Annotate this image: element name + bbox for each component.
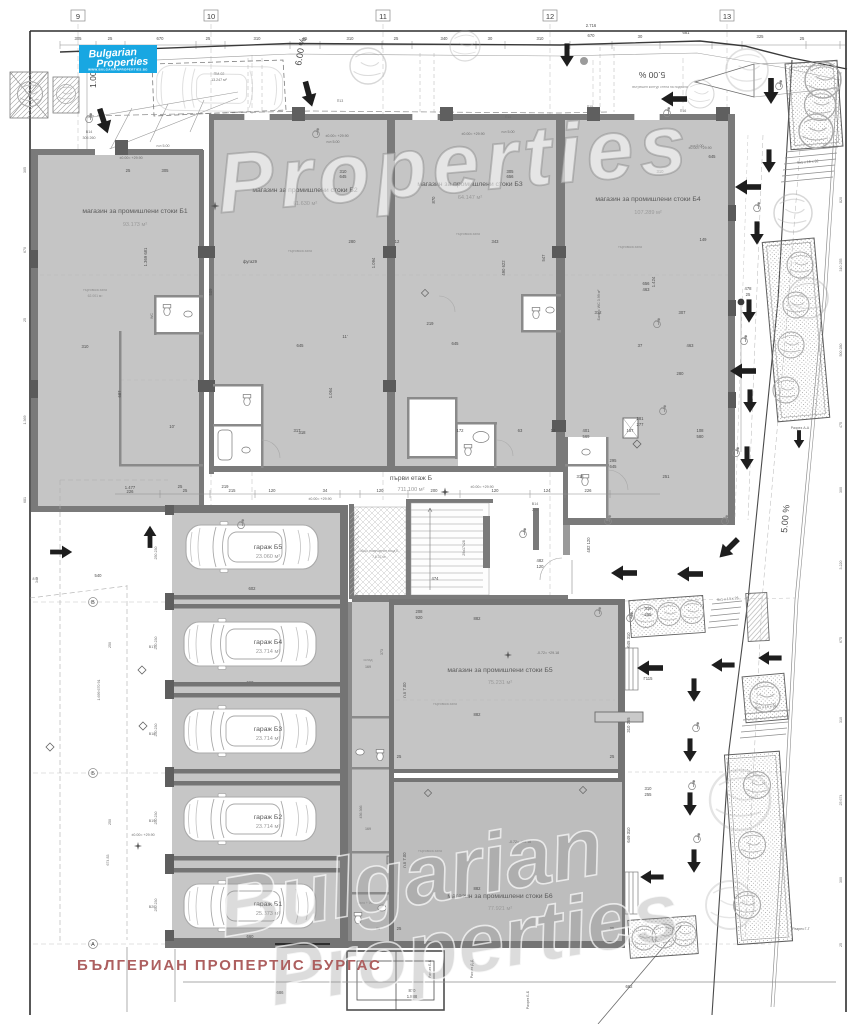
svg-text:300: 300 xyxy=(839,877,843,883)
svg-text:магазин за промишлени стоки Б4: магазин за промишлени стоки Б4 xyxy=(595,196,701,203)
svg-text:вътрешен контур стена на подва: вътрешен контур стена на подвала xyxy=(632,85,688,89)
svg-text:108: 108 xyxy=(697,428,705,433)
svg-text:37: 37 xyxy=(638,343,643,348)
svg-text:34: 34 xyxy=(323,488,328,493)
svg-text:склад: склад xyxy=(363,658,372,662)
svg-text:478: 478 xyxy=(745,286,753,291)
svg-text:n.n 7.00: n.n 7.00 xyxy=(402,682,407,698)
svg-text:645: 645 xyxy=(297,343,305,348)
svg-text:169: 169 xyxy=(365,827,371,831)
svg-text:2.716: 2.716 xyxy=(586,23,597,28)
svg-text:482 120: 482 120 xyxy=(586,537,591,553)
svg-text:681: 681 xyxy=(23,497,27,503)
svg-text:WWW.BULGARIANPROPERTIES.BG: WWW.BULGARIANPROPERTIES.BG xyxy=(88,68,148,72)
svg-text:547: 547 xyxy=(541,254,546,262)
svg-text:25: 25 xyxy=(394,36,399,41)
svg-text:B14: B14 xyxy=(532,502,538,506)
svg-text:463: 463 xyxy=(643,287,651,292)
svg-text:317: 317 xyxy=(294,428,302,433)
svg-text:656: 656 xyxy=(643,281,651,286)
svg-text:25 674: 25 674 xyxy=(839,795,843,806)
svg-text:310: 310 xyxy=(645,786,653,791)
svg-text:310: 310 xyxy=(839,717,843,723)
svg-text:475: 475 xyxy=(839,422,843,428)
svg-text:1.369 681: 1.369 681 xyxy=(143,247,148,266)
svg-text:25: 25 xyxy=(397,754,402,759)
svg-text:681: 681 xyxy=(683,30,691,35)
svg-text:882: 882 xyxy=(474,616,482,621)
svg-text:±0.00= +29.90: ±0.00= +29.90 xyxy=(470,485,493,489)
svg-text:124: 124 xyxy=(544,488,552,493)
svg-text:Г115: Г115 xyxy=(644,676,654,681)
svg-text:255: 255 xyxy=(645,792,653,797)
svg-text:649 310: 649 310 xyxy=(626,827,631,843)
svg-text:П13: П13 xyxy=(337,99,344,103)
svg-text:340: 340 xyxy=(441,36,449,41)
svg-text:373: 373 xyxy=(380,649,384,655)
svg-text:509: 509 xyxy=(208,288,213,296)
svg-text:н.п 5.00: н.п 5.00 xyxy=(157,144,170,148)
svg-text:3.220: 3.220 xyxy=(839,561,843,570)
svg-text:23.060 м²: 23.060 м² xyxy=(256,554,281,560)
svg-text:200: 200 xyxy=(431,488,439,493)
svg-text:25: 25 xyxy=(108,36,113,41)
svg-text:295: 295 xyxy=(610,458,618,463)
svg-text:±0.00= +29.90: ±0.00= +29.90 xyxy=(119,156,142,160)
svg-text:В: В xyxy=(91,600,95,606)
svg-text:645: 645 xyxy=(452,341,460,346)
svg-text:670: 670 xyxy=(157,36,165,41)
svg-text:318: 318 xyxy=(577,474,585,479)
svg-text:общо помещение вход Б: общо помещение вход Б xyxy=(360,549,400,553)
svg-text:12: 12 xyxy=(551,428,556,433)
svg-text:250: 250 xyxy=(108,819,112,825)
svg-text:10': 10' xyxy=(169,424,175,429)
svg-text:401: 401 xyxy=(583,428,591,433)
svg-text:25: 25 xyxy=(610,754,615,759)
svg-text:13: 13 xyxy=(723,12,731,21)
svg-text:920: 920 xyxy=(416,615,424,620)
svg-text:9: 9 xyxy=(76,12,80,21)
svg-text:569: 569 xyxy=(583,434,591,439)
svg-text:277: 277 xyxy=(637,422,645,427)
svg-text:11: 11 xyxy=(379,12,387,21)
svg-text:25: 25 xyxy=(839,943,843,947)
svg-text:25: 25 xyxy=(126,168,131,173)
svg-text:107.289 м²: 107.289 м² xyxy=(634,210,662,216)
svg-text:482: 482 xyxy=(537,558,545,563)
svg-text:25: 25 xyxy=(178,484,183,489)
svg-text:гараж Б2: гараж Б2 xyxy=(254,814,283,821)
svg-text:187: 187 xyxy=(627,428,635,433)
svg-text:62.001 м²: 62.001 м² xyxy=(88,294,104,298)
svg-text:645: 645 xyxy=(610,464,618,469)
svg-text:226: 226 xyxy=(585,488,593,493)
svg-text:±0.00= +29.90: ±0.00= +29.90 xyxy=(131,833,154,837)
svg-text:250: 250 xyxy=(108,642,112,648)
svg-text:490 622: 490 622 xyxy=(501,260,506,276)
svg-text:310: 310 xyxy=(347,36,355,41)
svg-text:25: 25 xyxy=(183,488,188,493)
svg-text:251: 251 xyxy=(663,474,671,479)
svg-text:1.424: 1.424 xyxy=(651,276,656,287)
svg-text:120: 120 xyxy=(537,564,545,569)
svg-text:гараж Б5: гараж Б5 xyxy=(254,544,283,551)
svg-text:н.п 5.00: н.п 5.00 xyxy=(691,144,704,148)
svg-text:1.00: 1.00 xyxy=(88,71,98,88)
svg-text:1.369: 1.369 xyxy=(23,416,27,425)
svg-text:5.00 %: 5.00 % xyxy=(638,70,665,80)
svg-text:B18: B18 xyxy=(149,732,155,736)
svg-text:120: 120 xyxy=(377,488,385,493)
svg-text:29x17x28: 29x17x28 xyxy=(462,540,466,556)
svg-text:500 280: 500 280 xyxy=(839,344,843,357)
svg-text:23.714 м²: 23.714 м² xyxy=(256,824,281,830)
svg-text:7.6.37 м²: 7.6.37 м² xyxy=(372,555,387,559)
svg-text:гараж Б3: гараж Б3 xyxy=(254,726,283,733)
svg-text:30: 30 xyxy=(638,34,643,39)
svg-text:12: 12 xyxy=(395,239,400,244)
svg-text:А: А xyxy=(91,942,95,948)
svg-text:580: 580 xyxy=(697,434,705,439)
svg-text:B17: B17 xyxy=(149,645,155,649)
svg-text:гараж Б4: гараж Б4 xyxy=(254,639,283,646)
svg-text:172: 172 xyxy=(457,428,465,433)
svg-text:търговска зала: търговска зала xyxy=(288,249,312,253)
svg-text:магазин за промишлени стоки Б5: магазин за промишлени стоки Б5 xyxy=(447,667,553,674)
svg-text:75.231 м²: 75.231 м² xyxy=(488,680,513,686)
svg-text:търговска зала: търговска зала xyxy=(83,288,107,292)
svg-text:търговска зала: търговска зала xyxy=(456,232,480,236)
svg-text:магазин за промишлени стоки Б1: магазин за промишлени стоки Б1 xyxy=(82,208,188,215)
svg-text:674 83: 674 83 xyxy=(106,855,110,866)
svg-text:219: 219 xyxy=(427,321,435,326)
svg-text:първи етаж Б: първи етаж Б xyxy=(390,475,433,482)
svg-text:645: 645 xyxy=(709,154,717,159)
svg-text:280: 280 xyxy=(349,239,357,244)
svg-text:670: 670 xyxy=(23,247,27,253)
svg-text:280: 280 xyxy=(677,371,685,376)
svg-text:307: 307 xyxy=(679,310,687,315)
svg-text:11': 11' xyxy=(342,334,347,339)
svg-text:305 260: 305 260 xyxy=(83,136,96,140)
svg-text:B14: B14 xyxy=(86,130,92,134)
svg-text:300: 300 xyxy=(839,487,843,493)
svg-text:-0.72= +29.18: -0.72= +29.18 xyxy=(537,651,559,655)
svg-text:215: 215 xyxy=(229,488,237,493)
svg-text:13.247 м²: 13.247 м² xyxy=(211,78,227,82)
svg-text:670: 670 xyxy=(588,33,596,38)
svg-text:711.100 м²: 711.100 м² xyxy=(397,487,424,493)
svg-text:25: 25 xyxy=(23,318,27,322)
svg-text:WC: WC xyxy=(150,313,154,319)
svg-text:Баня с WC 3.99 м²: Баня с WC 3.99 м² xyxy=(597,289,601,321)
svg-text:1.064: 1.064 xyxy=(328,387,333,398)
svg-text:281: 281 xyxy=(637,416,645,421)
svg-text:310 255: 310 255 xyxy=(839,259,843,272)
svg-text:8 9: 8 9 xyxy=(33,577,38,581)
svg-text:12: 12 xyxy=(546,12,554,21)
svg-text:310: 310 xyxy=(645,606,653,611)
svg-text:305: 305 xyxy=(162,168,170,173)
svg-text:120: 120 xyxy=(269,488,277,493)
svg-text:фуга29: фуга29 xyxy=(243,259,258,264)
svg-text:23.714 м²: 23.714 м² xyxy=(256,736,281,742)
svg-text:456 366: 456 366 xyxy=(359,806,363,819)
svg-text:343: 343 xyxy=(492,239,500,244)
svg-text:820: 820 xyxy=(839,197,843,203)
svg-text:БЪЛГЕРИАН ПРОПЕРТИС БУРГАС: БЪЛГЕРИАН ПРОПЕРТИС БУРГАС xyxy=(77,957,382,974)
svg-text:B20: B20 xyxy=(149,905,155,909)
svg-text:226: 226 xyxy=(127,489,135,494)
svg-text:310 255: 310 255 xyxy=(626,717,631,733)
svg-text:305: 305 xyxy=(23,167,27,173)
svg-text:23.714 м²: 23.714 м² xyxy=(256,649,281,655)
svg-text:474: 474 xyxy=(432,576,440,581)
svg-text:30: 30 xyxy=(488,36,493,41)
svg-text:169: 169 xyxy=(365,665,371,669)
svg-text:Б: Б xyxy=(91,771,95,777)
svg-text:10: 10 xyxy=(207,12,215,21)
svg-text:търговска зала: търговска зала xyxy=(433,702,457,706)
svg-text:1.094: 1.094 xyxy=(371,257,376,268)
svg-text:Разрез А-А: Разрез А-А xyxy=(791,426,810,430)
svg-text:219: 219 xyxy=(222,484,230,489)
svg-text:250 230: 250 230 xyxy=(154,547,158,560)
svg-text:25: 25 xyxy=(746,292,751,297)
svg-text:255: 255 xyxy=(645,612,653,617)
svg-text:търговска зала: търговска зала xyxy=(618,245,642,249)
svg-text:63: 63 xyxy=(518,428,523,433)
svg-text:645 310: 645 310 xyxy=(626,632,631,648)
svg-text:208: 208 xyxy=(416,609,424,614)
svg-text:310: 310 xyxy=(537,36,545,41)
svg-text:±0.00= +29.90: ±0.00= +29.90 xyxy=(308,497,331,501)
svg-text:325: 325 xyxy=(757,34,765,39)
svg-text:463: 463 xyxy=(687,343,695,348)
svg-text:675: 675 xyxy=(839,637,843,643)
svg-text:Разрез Г-Г: Разрез Г-Г xyxy=(792,927,810,931)
svg-text:1.699 670 91: 1.699 670 91 xyxy=(97,680,101,701)
svg-text:25: 25 xyxy=(800,36,805,41)
svg-text:540: 540 xyxy=(95,573,103,578)
svg-text:310: 310 xyxy=(82,344,90,349)
svg-text:25: 25 xyxy=(206,36,211,41)
svg-text:226: 226 xyxy=(532,508,538,512)
svg-text:93.173 м²: 93.173 м² xyxy=(123,222,148,228)
svg-text:B19: B19 xyxy=(149,819,155,823)
svg-text:882: 882 xyxy=(474,712,482,717)
svg-text:602: 602 xyxy=(249,586,257,591)
svg-text:310: 310 xyxy=(254,36,262,41)
svg-text:305: 305 xyxy=(75,36,83,41)
svg-text:149: 149 xyxy=(700,237,708,242)
svg-text:687: 687 xyxy=(117,390,122,398)
svg-text:Разрез Б-Б: Разрез Б-Б xyxy=(526,990,530,1009)
